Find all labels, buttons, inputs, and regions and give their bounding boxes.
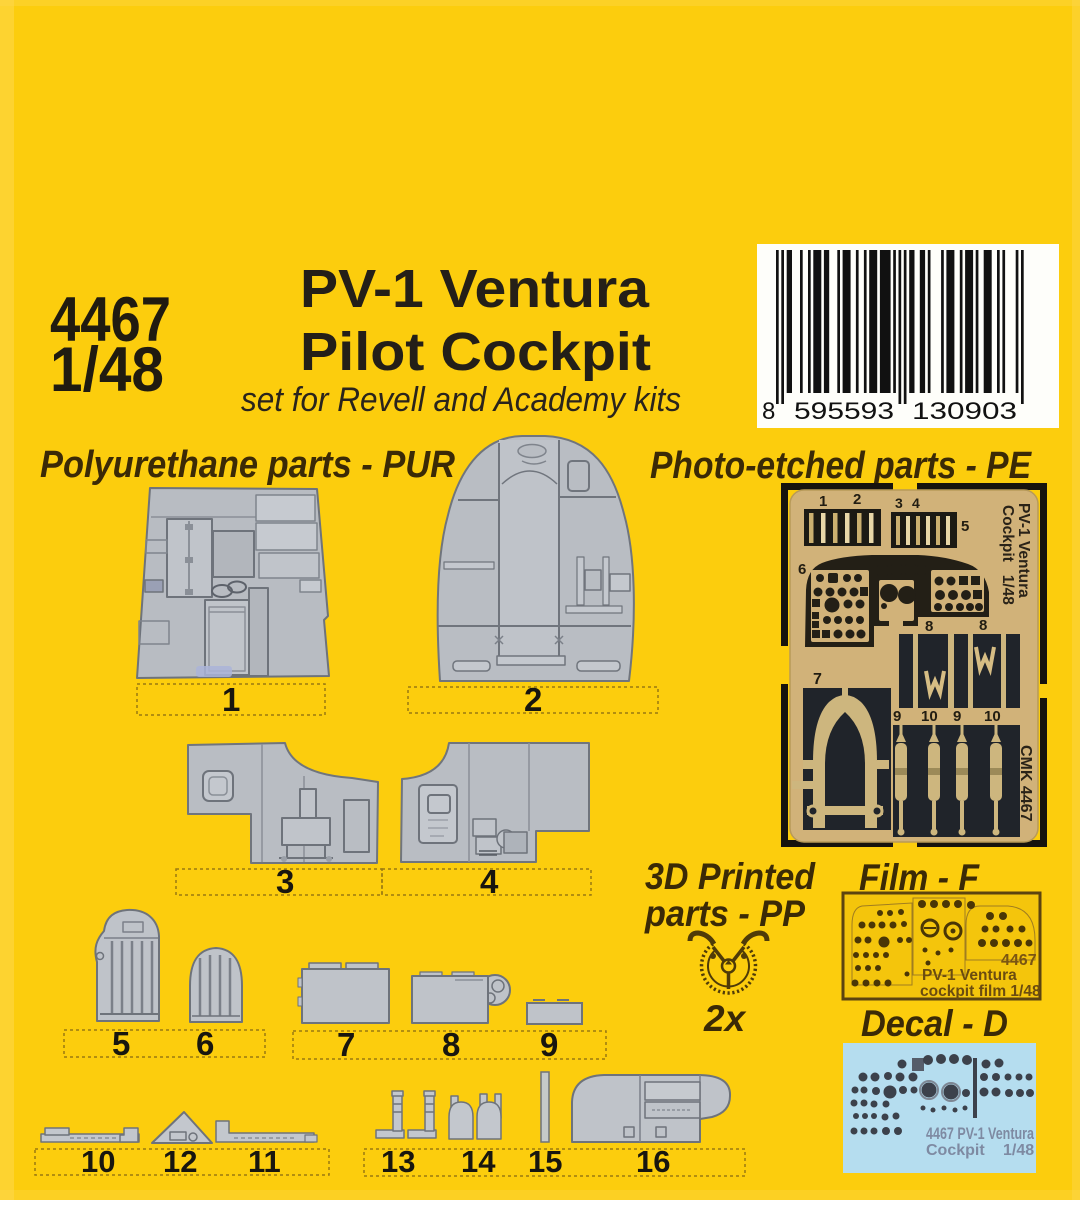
- svg-text:8: 8: [762, 398, 775, 425]
- svg-text:7: 7: [337, 1026, 355, 1063]
- svg-text:10: 10: [921, 708, 938, 725]
- svg-text:130903: 130903: [912, 398, 1017, 425]
- svg-text:4467 PV-1 Ventura: 4467 PV-1 Ventura: [926, 1124, 1034, 1143]
- svg-text:Polyurethane parts - PUR: Polyurethane parts - PUR: [40, 444, 455, 486]
- svg-text:4: 4: [912, 495, 920, 511]
- svg-text:16: 16: [636, 1144, 670, 1179]
- svg-text:PV-1 Ventura: PV-1 Ventura: [922, 967, 1017, 984]
- svg-text:15: 15: [528, 1144, 562, 1179]
- svg-text:9: 9: [540, 1026, 558, 1063]
- svg-text:2: 2: [524, 681, 542, 718]
- svg-text:8: 8: [442, 1026, 460, 1063]
- svg-text:Cockpit: Cockpit: [926, 1142, 985, 1159]
- svg-text:PV-1 Ventura: PV-1 Ventura: [300, 259, 650, 319]
- svg-text:6: 6: [196, 1025, 214, 1062]
- svg-text:2: 2: [853, 491, 861, 508]
- svg-text:set for Revell and Academy kit: set for Revell and Academy kits: [241, 381, 681, 419]
- svg-text:5: 5: [961, 518, 969, 535]
- svg-text:13: 13: [381, 1144, 415, 1179]
- svg-text:parts - PP: parts - PP: [644, 893, 805, 934]
- svg-text:3: 3: [895, 495, 903, 511]
- svg-text:8: 8: [979, 617, 987, 634]
- svg-text:1/48: 1/48: [1003, 1142, 1034, 1159]
- svg-text:10: 10: [81, 1144, 115, 1179]
- svg-text:Film - F: Film - F: [859, 857, 980, 898]
- svg-text:Cockpit 1/48: Cockpit 1/48: [999, 505, 1016, 605]
- svg-text:11: 11: [248, 1144, 281, 1179]
- svg-text:9: 9: [893, 708, 901, 725]
- svg-text:Photo-etched parts - PE: Photo-etched parts - PE: [650, 445, 1032, 487]
- svg-text:4: 4: [480, 863, 499, 900]
- svg-text:14: 14: [461, 1144, 496, 1179]
- svg-text:cockpit film 1/48: cockpit film 1/48: [920, 983, 1041, 1000]
- svg-text:1/48: 1/48: [50, 335, 164, 405]
- svg-text:PV-1 Ventura: PV-1 Ventura: [1015, 503, 1032, 598]
- svg-text:12: 12: [163, 1144, 197, 1179]
- svg-text:5: 5: [112, 1025, 130, 1062]
- svg-text:1: 1: [819, 493, 827, 510]
- svg-text:8: 8: [925, 618, 933, 635]
- svg-text:10: 10: [984, 708, 1001, 725]
- svg-text:6: 6: [798, 561, 806, 578]
- svg-text:3D Printed: 3D Printed: [645, 856, 816, 897]
- svg-text:Pilot Cockpit: Pilot Cockpit: [300, 322, 651, 382]
- svg-text:1: 1: [222, 681, 240, 718]
- svg-text:Decal - D: Decal - D: [861, 1003, 1008, 1044]
- svg-text:7: 7: [813, 671, 822, 688]
- svg-text:2x: 2x: [703, 998, 747, 1039]
- svg-text:595593: 595593: [794, 398, 894, 425]
- svg-text:3: 3: [276, 863, 294, 900]
- svg-text:9: 9: [953, 708, 961, 725]
